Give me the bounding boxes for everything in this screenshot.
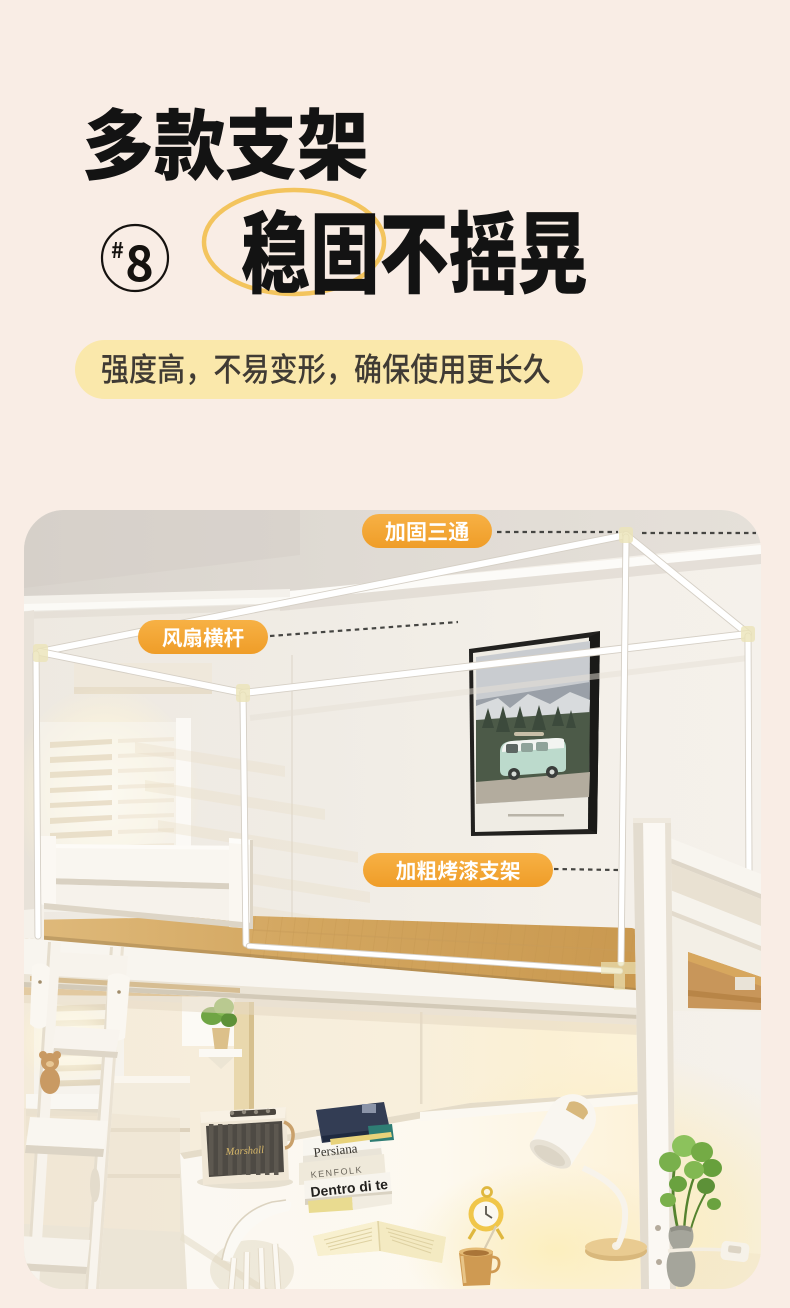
svg-text:Marshall: Marshall: [224, 1145, 264, 1158]
